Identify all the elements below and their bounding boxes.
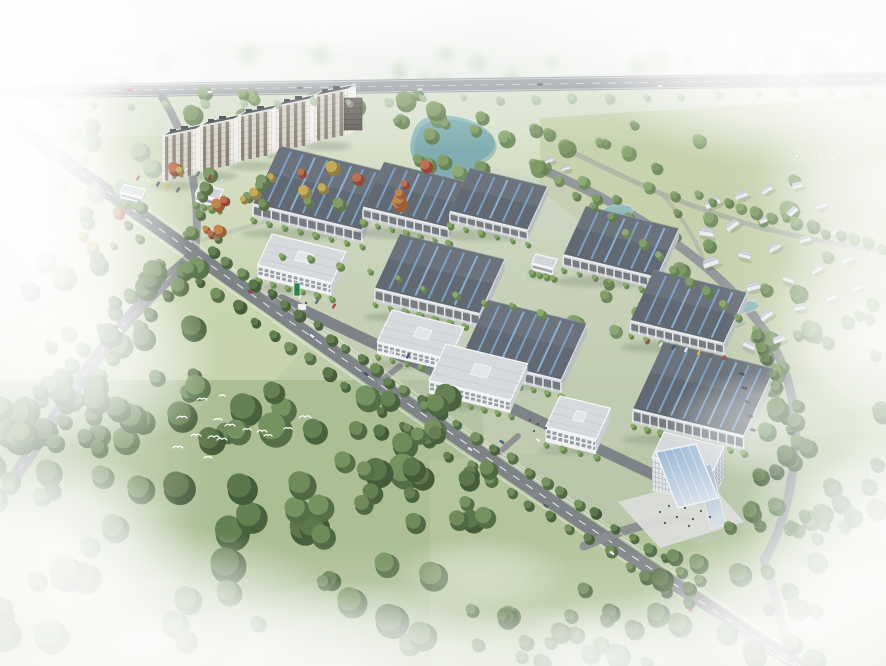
atmosphere-tint xyxy=(0,0,886,666)
clouds-layer xyxy=(0,0,886,666)
aerial-rendering-frame xyxy=(0,0,886,666)
aerial-rendering xyxy=(0,0,886,666)
